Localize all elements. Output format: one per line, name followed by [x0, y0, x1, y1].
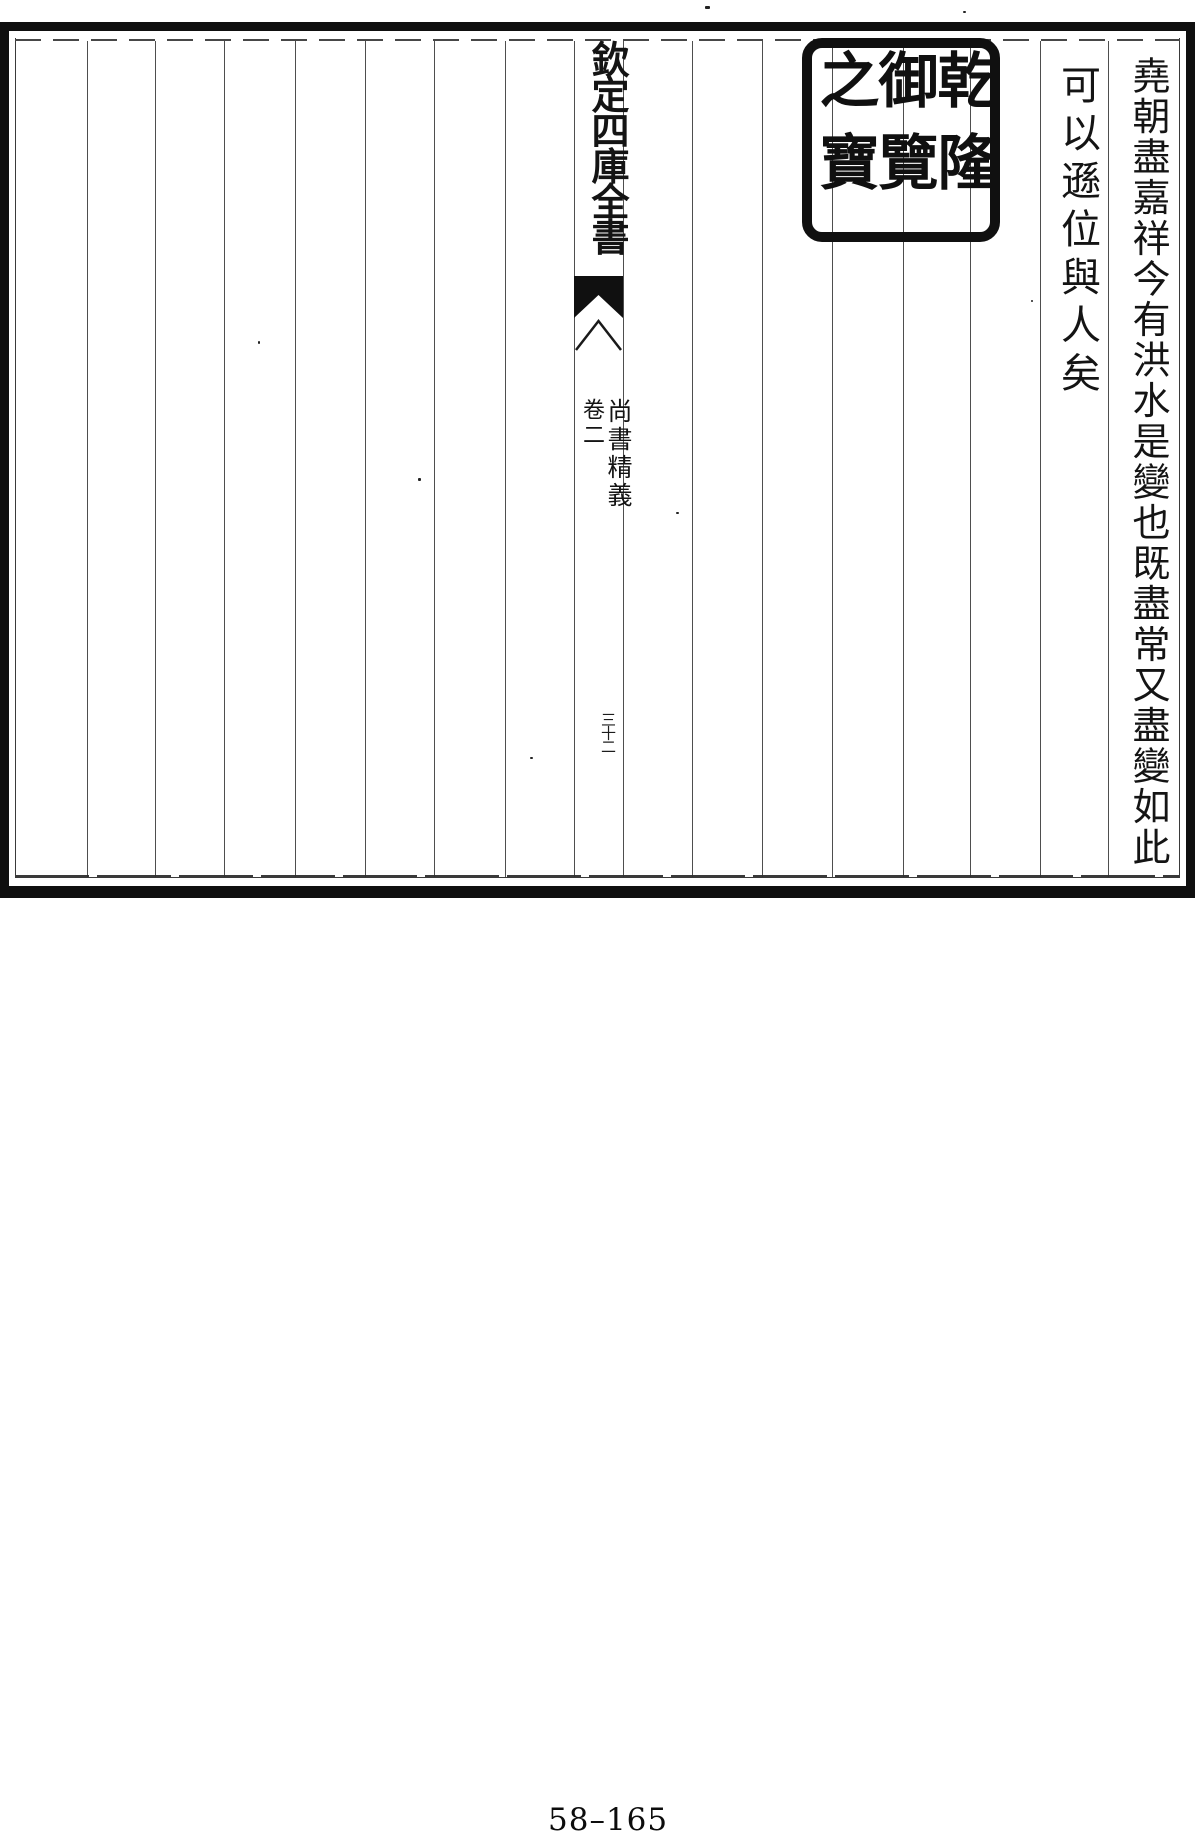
column-rule	[762, 41, 763, 877]
text-column-2: 可以遜位與人矣	[1048, 64, 1106, 400]
text-column-1: 堯朝盡嘉祥今有洪水是變也既盡常又盡變如此	[1120, 56, 1175, 868]
column-rule	[224, 41, 225, 877]
banxin-volume: 卷二	[576, 398, 608, 448]
banxin-folio-number: 三十二	[597, 712, 618, 753]
column-rule	[574, 41, 575, 877]
column-rule	[692, 41, 693, 877]
scan-speck	[530, 757, 533, 759]
qianlong-seal-stamp: 乾隆御覽之寶	[802, 38, 1000, 242]
seal-text: 乾隆御覽之寶	[812, 48, 991, 233]
scan-speck	[676, 512, 679, 514]
bottom-rule	[15, 875, 1180, 877]
column-rule	[1108, 41, 1109, 877]
column-rule	[365, 41, 366, 877]
column-rule	[1040, 41, 1041, 877]
scan-speck	[258, 341, 260, 344]
column-rule	[155, 41, 156, 877]
scan-speck	[1031, 300, 1033, 302]
scan-speck	[963, 11, 966, 13]
column-rule	[295, 41, 296, 877]
column-rule	[87, 41, 88, 877]
scan-speck	[705, 6, 710, 9]
fishtail-icon	[574, 276, 623, 354]
column-rule	[505, 41, 506, 877]
series-title: 欽定四庫全書	[579, 40, 634, 253]
page-number: 58–165	[548, 1802, 668, 1838]
column-rule	[434, 41, 435, 877]
scan-speck	[418, 478, 421, 481]
